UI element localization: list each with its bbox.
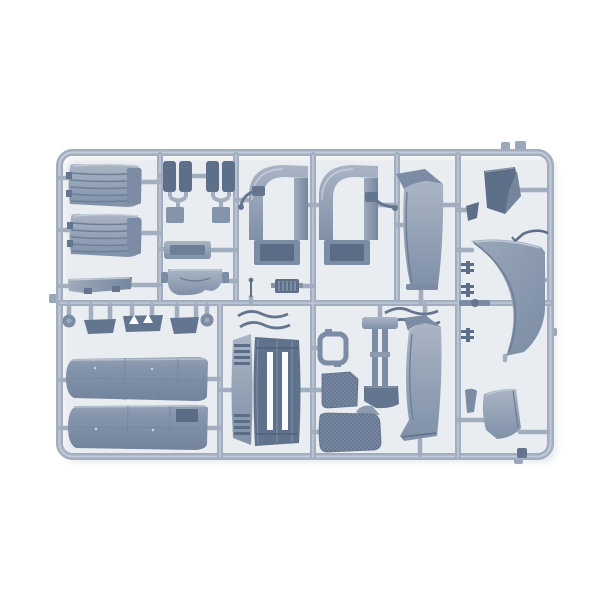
slotted-block [271, 279, 303, 293]
lower-corner-panel [483, 389, 521, 439]
storage-tray [164, 241, 211, 259]
product-photo [0, 0, 610, 610]
ribbed-panel-top [66, 164, 142, 207]
roof-panel-front [66, 357, 208, 401]
front-grille [232, 334, 301, 446]
ribbed-panel-bottom [67, 214, 142, 257]
sprue-photo-svg [0, 0, 610, 610]
roof-panel-rear [68, 405, 208, 450]
corner-block [517, 448, 527, 458]
tread-plate-small [322, 372, 358, 408]
